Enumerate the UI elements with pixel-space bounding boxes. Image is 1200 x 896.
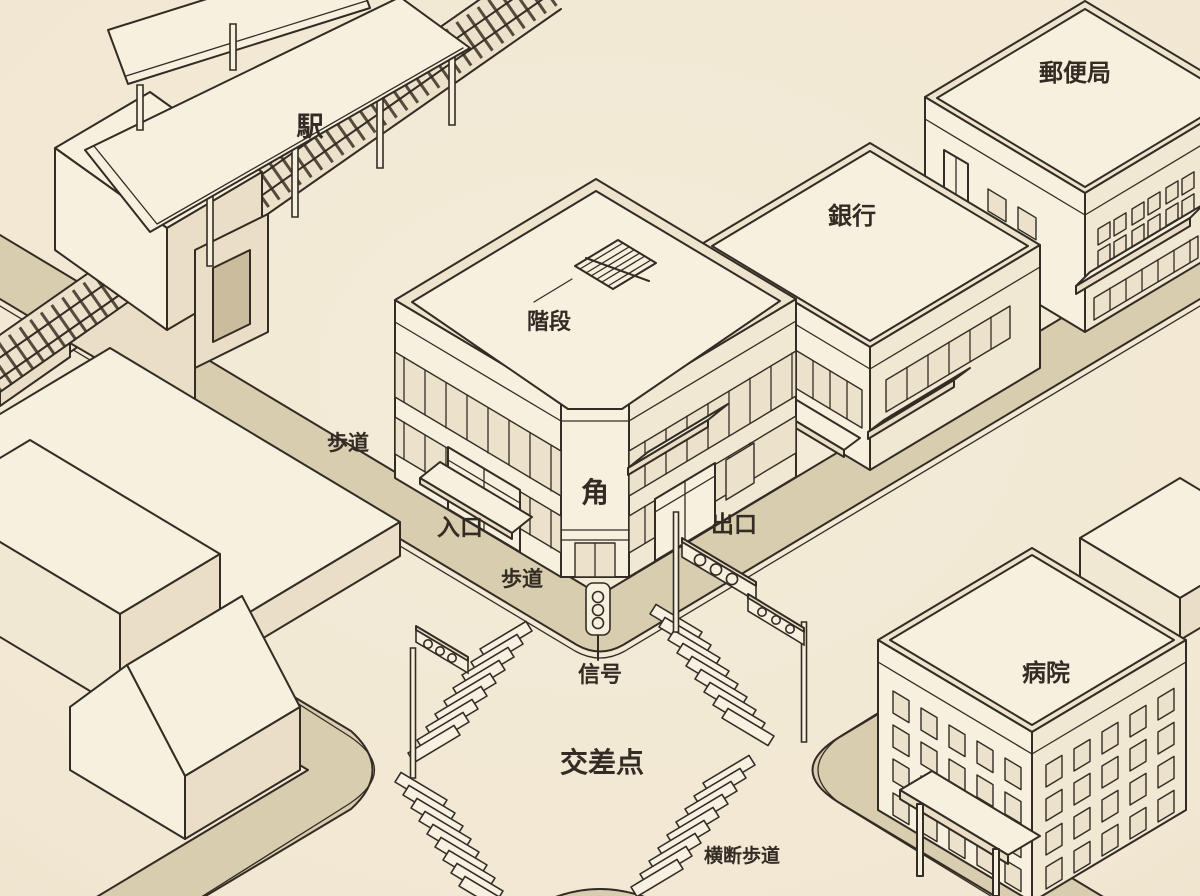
label-hospital: 病院 <box>1022 659 1070 687</box>
label-stairs: 階段 <box>527 309 571 335</box>
signal-light <box>694 554 705 565</box>
crosswalk-southeast <box>631 755 755 896</box>
signal-light <box>726 573 737 584</box>
label-crosswalk: 横断歩道 <box>704 844 780 867</box>
signal-light <box>786 625 794 633</box>
label-sidewalk-lower: 歩道 <box>501 567 543 591</box>
signal-light <box>448 654 456 662</box>
label-exit: 出口 <box>711 512 757 538</box>
label-entrance: 入口 <box>437 515 483 541</box>
signal-light <box>424 640 432 648</box>
label-station: 駅 <box>297 112 324 143</box>
corner-door <box>575 543 615 577</box>
signal-light <box>593 618 604 629</box>
signal-light <box>593 605 604 616</box>
signal-light <box>436 647 444 655</box>
signal-light <box>710 564 721 575</box>
map-canvas: 駅 郵便局 銀行 階段 歩道 角 入口 出口 歩道 信号 交差点 横断歩道 病院 <box>0 0 1200 896</box>
label-corner: 角 <box>581 476 609 509</box>
crosswalk-northeast <box>650 604 774 745</box>
label-signal: 信号 <box>578 662 622 688</box>
signal-light <box>593 592 604 603</box>
label-bank: 銀行 <box>828 202 876 230</box>
label-intersection: 交差点 <box>560 746 644 779</box>
isometric-street-map: 駅 郵便局 銀行 階段 歩道 角 入口 出口 歩道 信号 交差点 横断歩道 病院 <box>0 0 1200 896</box>
crosswalk-southwest <box>395 772 511 896</box>
label-sidewalk-upper: 歩道 <box>327 431 369 455</box>
signal-light <box>772 616 780 624</box>
signal-pole <box>411 648 416 778</box>
signal-light <box>758 608 766 616</box>
label-post-office: 郵便局 <box>1039 59 1111 87</box>
signal-pole <box>674 512 679 632</box>
